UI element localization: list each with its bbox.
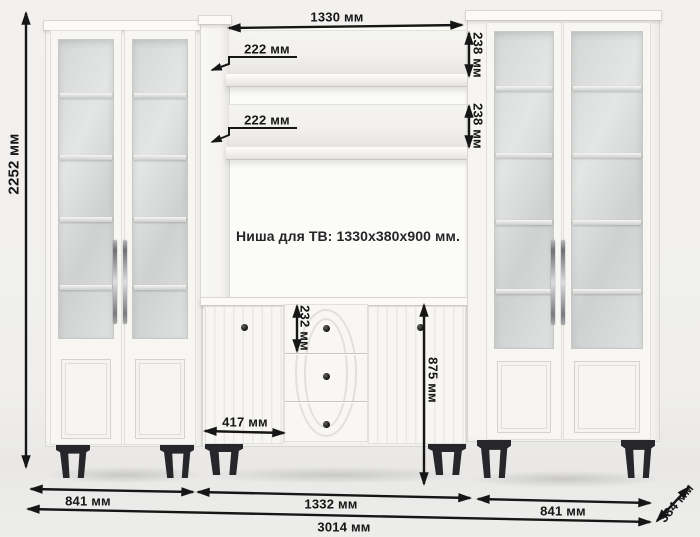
dimension-arrows (0, 0, 700, 537)
dim-label-total-width: 3014 мм (317, 520, 370, 535)
dim-label-left-width: 841 мм (65, 494, 111, 509)
dim-label-shelf-depth-bottom: 222 мм (244, 113, 290, 128)
arrow-right-width (478, 499, 650, 503)
leader-shelf-depth-top (212, 57, 297, 70)
dim-label-niche-width: 1330 мм (310, 10, 363, 25)
dim-label-center-width: 1332 мм (304, 497, 357, 512)
dim-label-clearance-bottom: 238 мм (471, 103, 486, 149)
leader-shelf-depth-bottom (212, 128, 297, 142)
arrow-niche-width (229, 25, 462, 28)
dim-label-right-width: 841 мм (540, 504, 586, 519)
arrow-left-width (31, 489, 193, 492)
arrow-stand-door-width (205, 431, 284, 433)
dim-label-drawer-height: 232 мм (298, 305, 313, 351)
dim-label-total-height: 2252 мм (6, 133, 23, 194)
furniture-dimension-diagram: 1330 мм 222 мм 222 мм 238 мм 238 мм 2252… (0, 0, 700, 537)
dim-label-stand-height: 875 мм (426, 357, 441, 403)
dim-label-clearance-top: 238 мм (471, 32, 486, 78)
dim-label-shelf-depth-top: 222 мм (244, 42, 290, 57)
tv-niche-note: Ниша для ТВ: 1330x380x900 мм. (236, 228, 460, 244)
dim-label-stand-door-width: 417 мм (222, 415, 268, 430)
